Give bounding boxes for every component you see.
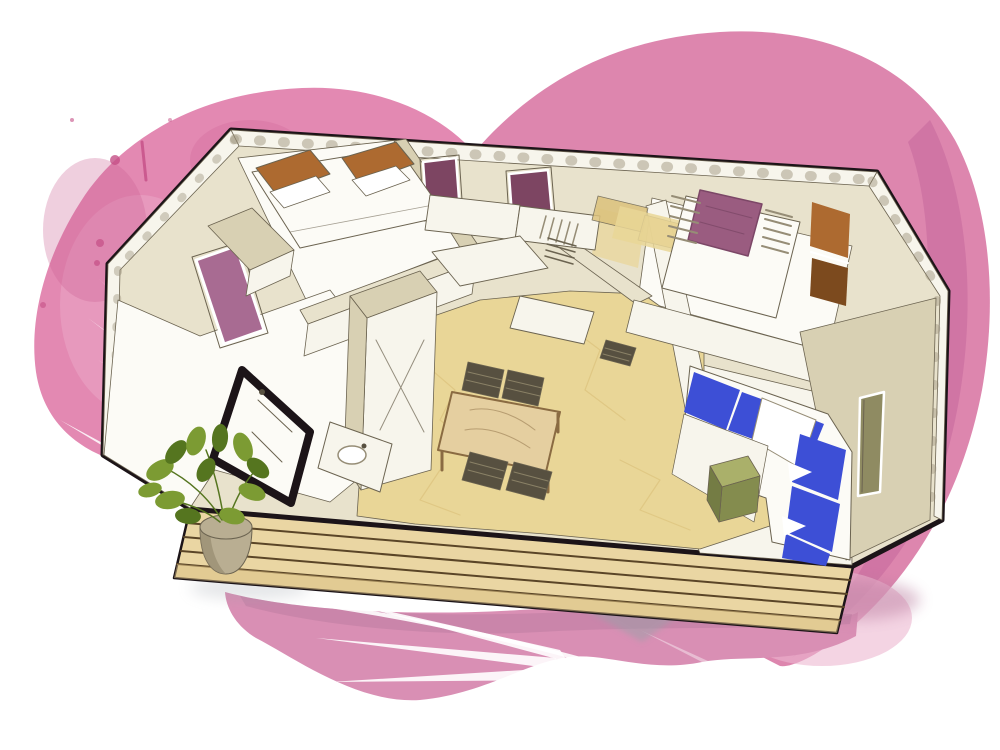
splatter-dot bbox=[70, 118, 74, 122]
splatter-dot bbox=[168, 118, 172, 122]
coffee-table-olive bbox=[707, 456, 760, 522]
splatter-dot bbox=[110, 155, 120, 165]
illustration-stage bbox=[0, 0, 1000, 750]
shower-head bbox=[259, 389, 265, 395]
splatter-dot bbox=[94, 260, 100, 266]
right-wall-slot-window bbox=[858, 392, 884, 496]
sink-faucet bbox=[362, 444, 367, 449]
house bbox=[103, 130, 948, 566]
splatter-dot bbox=[96, 239, 104, 247]
floorplan-illustration bbox=[0, 0, 1000, 750]
sink-basin bbox=[338, 446, 366, 464]
splatter-dot bbox=[40, 302, 46, 308]
